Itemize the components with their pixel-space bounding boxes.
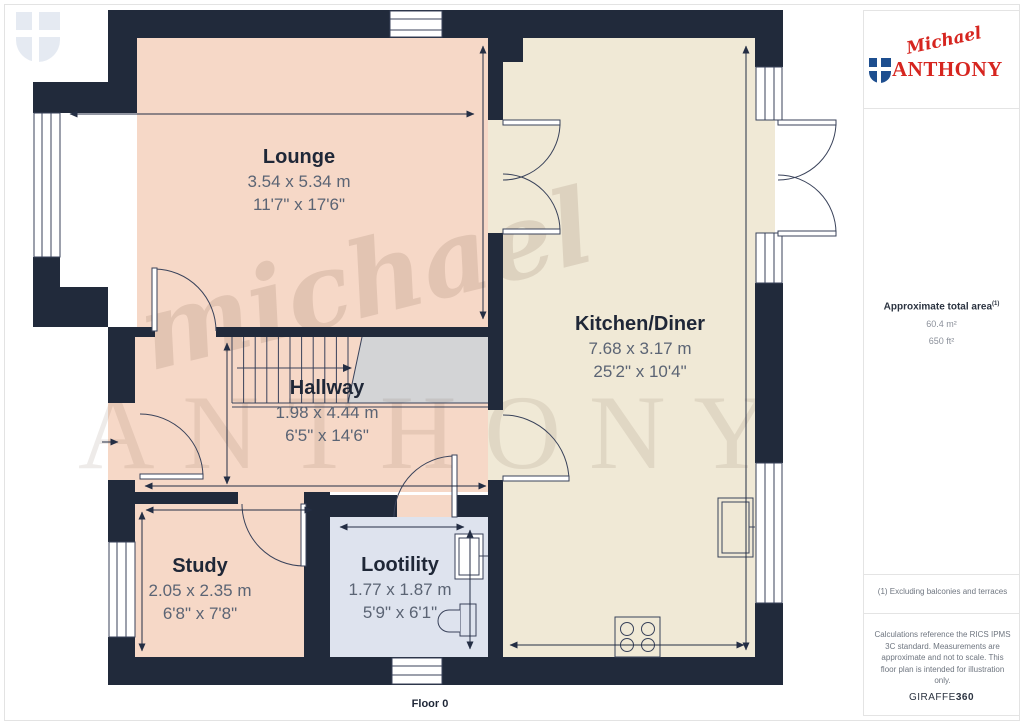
door-front-entrance (140, 414, 203, 479)
room-size-metric: 2.05 x 2.35 m (148, 579, 251, 602)
room-name: Study (148, 553, 251, 579)
room-size-imperial: 6'8" x 7'8" (148, 602, 251, 625)
room-size-imperial: 5'9" x 6'1" (348, 601, 451, 624)
total-area-m2: 60.4 m² (864, 319, 1019, 329)
room-label-kitchen: Kitchen/Diner 7.68 x 3.17 m 25'2" x 10'4… (575, 311, 705, 383)
window-kitchen-right-1 (756, 67, 782, 120)
room-size-imperial: 6'5" x 14'6" (275, 424, 378, 447)
french-doors-lounge-kitchen (503, 120, 560, 234)
divider (864, 108, 1019, 109)
window-top (390, 11, 442, 37)
room-size-metric: 1.77 x 1.87 m (348, 578, 451, 601)
floor-label: Floor 0 (412, 698, 449, 710)
agency-shield-icon (869, 58, 891, 83)
area-footnote: (1) Excluding balconies and terraces (872, 587, 1013, 596)
room-name: Lootility (348, 552, 451, 578)
hob-fixture (615, 617, 660, 657)
french-doors-kitchen-exterior (778, 120, 836, 236)
total-area-block: Approximate total area(1) 60.4 m² 650 ft… (864, 301, 1019, 346)
total-area-title: Approximate total area(1) (864, 301, 1019, 312)
agency-name-script: Michael (893, 21, 995, 61)
room-size-imperial: 25'2" x 10'4" (575, 360, 705, 383)
brand-bold: 360 (956, 692, 974, 703)
room-label-utility: Lootility 1.77 x 1.87 m 5'9" x 6'1" (348, 552, 451, 624)
room-name: Kitchen/Diner (575, 311, 705, 337)
room-name: Lounge (247, 144, 350, 170)
agency-name-caps: ANTHONY (892, 57, 1020, 82)
total-area-superscript: (1) (992, 301, 999, 307)
room-size-metric: 3.54 x 5.34 m (247, 170, 350, 193)
fixtures (438, 498, 755, 657)
disclaimer-text: Calculations reference the RICS IPMS 3C … (874, 629, 1011, 687)
divider (864, 613, 1019, 614)
window-lounge-left (34, 113, 60, 257)
window-kitchen-right-3 (756, 463, 782, 603)
giraffe360-brand: GIRAFFE360 (864, 692, 1019, 703)
room-label-lounge: Lounge 3.54 x 5.34 m 11'7" x 17'6" (247, 144, 350, 216)
floorplan-page: michael ANTHONY (0, 0, 1024, 725)
info-sidebar: Michael ANTHONY Approximate total area(1… (863, 10, 1020, 716)
room-size-imperial: 11'7" x 17'6" (247, 193, 350, 216)
agency-logo: Michael ANTHONY (864, 31, 1019, 101)
window-kitchen-right-2 (756, 233, 782, 283)
room-size-metric: 7.68 x 3.17 m (575, 337, 705, 360)
room-label-study: Study 2.05 x 2.35 m 6'8" x 7'8" (148, 553, 251, 625)
room-label-hallway: Hallway 1.98 x 4.44 m 6'5" x 14'6" (275, 375, 378, 447)
total-area-title-text: Approximate total area (884, 301, 992, 312)
window-study-left (109, 542, 135, 637)
door-study (242, 504, 306, 566)
brand-regular: GIRAFFE (909, 692, 956, 703)
utility-sink-fixture (455, 534, 488, 579)
divider (864, 574, 1019, 575)
window-bottom (392, 658, 442, 684)
room-size-metric: 1.98 x 4.44 m (275, 401, 378, 424)
room-name: Hallway (275, 375, 378, 401)
door-lounge (152, 268, 216, 331)
kitchen-unit-fixture (718, 498, 755, 557)
door-kitchen (503, 415, 569, 481)
total-area-ft2: 650 ft² (864, 336, 1019, 346)
